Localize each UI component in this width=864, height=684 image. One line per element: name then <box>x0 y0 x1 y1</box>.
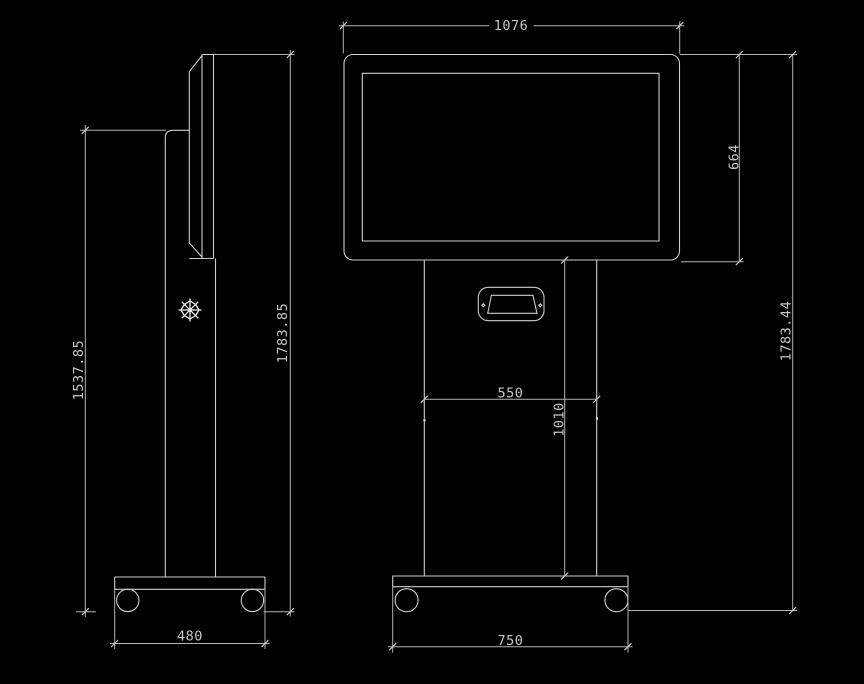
dim-front-pedestal-width-label: 550 <box>498 386 524 402</box>
pedestal-node-point-left <box>423 419 425 421</box>
front-caster-left <box>395 589 418 612</box>
dim-front-total-height-label: 1783.44 <box>779 301 795 361</box>
dim-front-display-height: 664 <box>681 51 744 265</box>
front-handle-outline <box>478 287 544 320</box>
dim-side-base-depth: 480 <box>110 589 270 649</box>
dim-side-base-depth-label: 480 <box>177 629 203 645</box>
dim-front-pedestal-width: 550 <box>421 386 600 403</box>
side-base <box>115 577 265 612</box>
front-base <box>393 576 628 612</box>
side-caster-left <box>117 589 139 611</box>
front-handle-slot <box>488 295 537 313</box>
side-monitor-body <box>189 55 213 259</box>
front-pedestal <box>424 260 596 576</box>
dim-front-base-width: 750 <box>388 587 633 653</box>
point-marker-icon <box>179 299 201 321</box>
front-display-bezel <box>344 55 680 261</box>
side-column <box>165 130 215 577</box>
side-view: 1537.85 1783.85 480 <box>71 50 295 649</box>
pedestal-node-point-right <box>596 417 598 419</box>
side-monitor-profile <box>189 55 213 259</box>
front-caster-right <box>605 589 628 612</box>
dim-front-display-width: 1076 <box>339 18 684 54</box>
kiosk-drawing: 1537.85 1783.85 480 <box>0 0 864 684</box>
dim-side-column-height-label: 1537.85 <box>71 340 87 400</box>
side-base-plate <box>115 577 265 589</box>
dim-side-column-height: 1537.85 <box>71 125 166 617</box>
front-handle-point-right <box>539 304 542 307</box>
front-handle-point-left <box>482 304 485 307</box>
front-handle <box>478 287 544 320</box>
front-view: 1076 664 1783.44 550 1010 <box>339 18 797 653</box>
side-column-outline <box>165 130 215 577</box>
dim-front-display-width-label: 1076 <box>494 18 529 34</box>
side-caster-right <box>241 589 263 611</box>
dim-side-total-height-label: 1783.85 <box>275 303 291 363</box>
dim-front-display-height-label: 664 <box>727 144 743 170</box>
dim-side-total-height: 1783.85 <box>214 50 295 617</box>
dim-front-pedestal-height: 1010 <box>552 257 569 580</box>
dim-front-total-height: 1783.44 <box>629 51 798 614</box>
cad-canvas: 1537.85 1783.85 480 <box>0 0 864 684</box>
dim-front-pedestal-height-label: 1010 <box>552 402 568 437</box>
dim-front-base-width-label: 750 <box>498 633 524 649</box>
front-base-plate <box>393 576 628 587</box>
front-display-screen <box>362 73 659 241</box>
